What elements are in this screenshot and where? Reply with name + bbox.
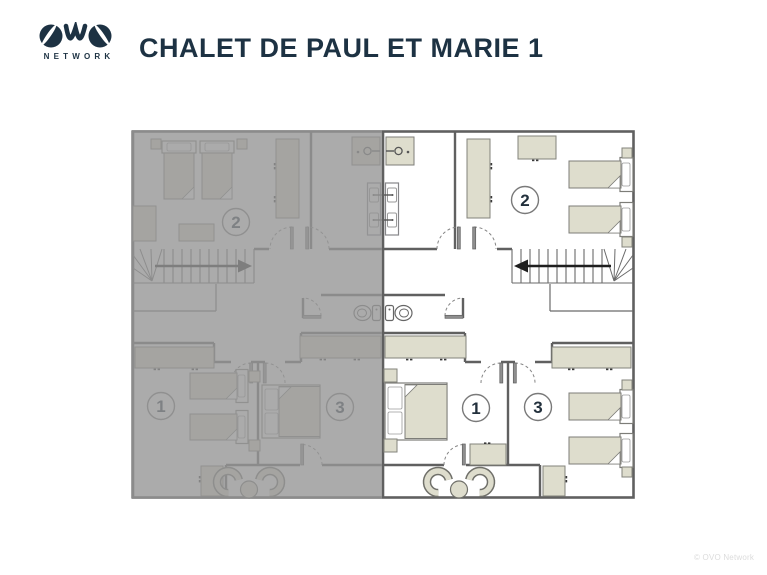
nightstand xyxy=(622,148,632,158)
single-bed xyxy=(569,158,633,192)
copyright-text: © OVO Network xyxy=(694,553,754,562)
single-bed xyxy=(569,203,633,237)
single-bed xyxy=(569,390,633,424)
wardrobe xyxy=(518,136,556,159)
nightstand xyxy=(622,467,632,477)
room-label-right-2: 2 xyxy=(512,187,539,214)
svg-text:1: 1 xyxy=(471,399,480,418)
nightstand xyxy=(384,439,397,452)
nightstand xyxy=(622,380,632,390)
nightstand xyxy=(384,369,397,382)
inactive-unit-overlay xyxy=(131,131,382,499)
floor-plan: 1 2 3 2 1 3 xyxy=(0,0,767,575)
svg-text:3: 3 xyxy=(533,398,542,417)
room-label-right-3: 3 xyxy=(525,394,552,421)
dresser xyxy=(470,444,506,465)
single-bed xyxy=(569,434,633,468)
double-bed xyxy=(385,383,447,440)
nightstand xyxy=(622,237,632,247)
svg-text:2: 2 xyxy=(520,191,529,210)
room-label-right-1: 1 xyxy=(463,395,490,422)
